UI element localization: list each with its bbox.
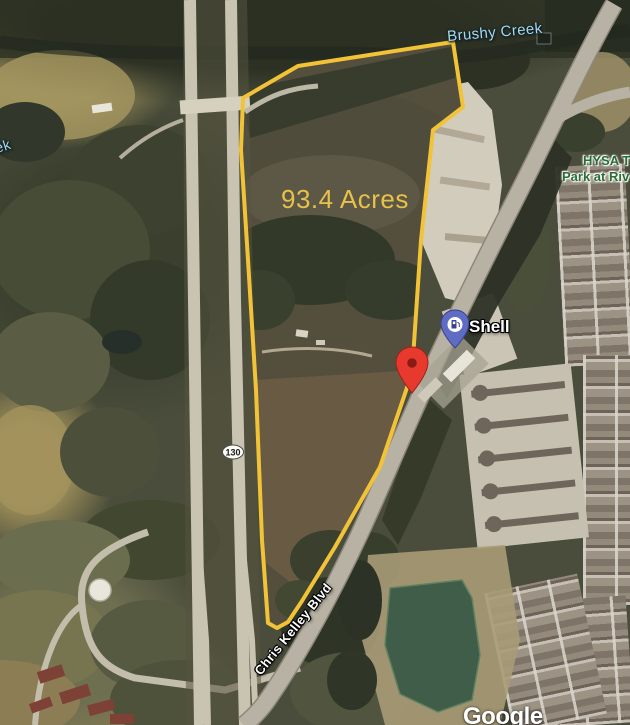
water-tank — [89, 579, 111, 601]
pond — [385, 580, 480, 712]
pond-area — [327, 545, 520, 725]
map-canvas[interactable]: 130 Brushy Creek ek HYSA T Park at Riv 9… — [0, 0, 630, 725]
svg-text:130: 130 — [225, 448, 240, 458]
map-feature-layer: 130 — [0, 0, 630, 725]
highway-130-shield-icon: 130 — [223, 445, 244, 459]
